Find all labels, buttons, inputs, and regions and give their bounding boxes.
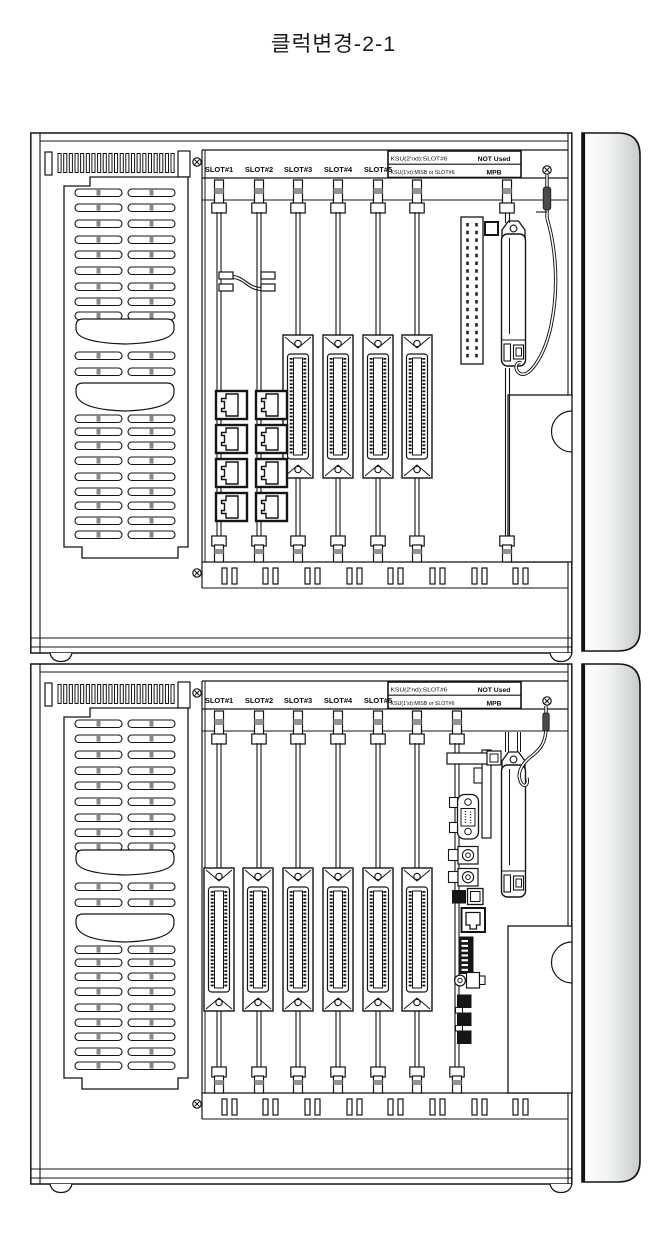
slot-labels: SLOT#1 SLOT#2 SLOT#3 SLOT#4 SLOT#5: [205, 696, 392, 705]
slot6-line1-right: NOT Used: [478, 156, 511, 163]
bracket-arm: [447, 753, 488, 764]
slot6-line2-left: KSU(1'st):MISB or SLOT#6: [391, 701, 455, 707]
cabinet-upper: SLOT#1 SLOT#2 SLOT#3 SLOT#4 SLOT#5 KSU(2…: [31, 133, 640, 662]
amphenol-connector: [402, 335, 432, 478]
dip-header: [460, 937, 474, 974]
diagram-canvas: SLOT#1 SLOT#2 SLOT#3 SLOT#4 SLOT#5 KSU(2…: [0, 0, 667, 1233]
module-port: [453, 889, 484, 905]
slot-label: SLOT#5: [364, 696, 392, 705]
slot6-line1-left: KSU(2'nd):SLOT#6: [391, 688, 448, 694]
amphenol-connector: [323, 868, 353, 1011]
slot-label: SLOT#2: [245, 165, 273, 174]
amphenol-connector: [283, 868, 313, 1011]
slot6-line2-right: MPB: [486, 170, 501, 177]
slot-label: SLOT#1: [205, 696, 233, 705]
slot-label: SLOT#3: [284, 165, 312, 174]
diagram-page: 클럭변경-2-1: [0, 0, 667, 1233]
slot-label: SLOT#4: [324, 696, 353, 705]
slot-label: SLOT#5: [364, 165, 392, 174]
rj45-jack: [462, 908, 486, 932]
slot-label: SLOT#2: [245, 696, 273, 705]
amphenol-connector: [402, 868, 432, 1011]
amphenol-connector: [204, 868, 234, 1011]
slot6-line1-right: NOT Used: [478, 687, 511, 694]
amphenol-connector: [243, 868, 273, 1011]
slot-label: SLOT#4: [324, 165, 353, 174]
cabinet-lower: SLOT#1 SLOT#2 SLOT#3 SLOT#4 SLOT#5 KSU(2…: [31, 664, 640, 1193]
stacked-jacks: [456, 995, 472, 1044]
slot6-line2-right: MPB: [486, 701, 501, 708]
amphenol-connector: [363, 868, 393, 1011]
slot-label: SLOT#3: [284, 696, 312, 705]
amphenol-connector: [363, 335, 393, 478]
amphenol-connector: [323, 335, 353, 478]
slot-label: SLOT#1: [205, 165, 233, 174]
slot6-line1-left: KSU(2'nd):SLOT#6: [391, 157, 448, 163]
slot6-line2-left: KSU(1'st):MISB or SLOT#6: [391, 170, 455, 176]
edge-connector-strip: [461, 217, 483, 364]
slot-labels: SLOT#1 SLOT#2 SLOT#3 SLOT#4 SLOT#5: [205, 165, 392, 174]
jumper-block: [485, 222, 498, 235]
